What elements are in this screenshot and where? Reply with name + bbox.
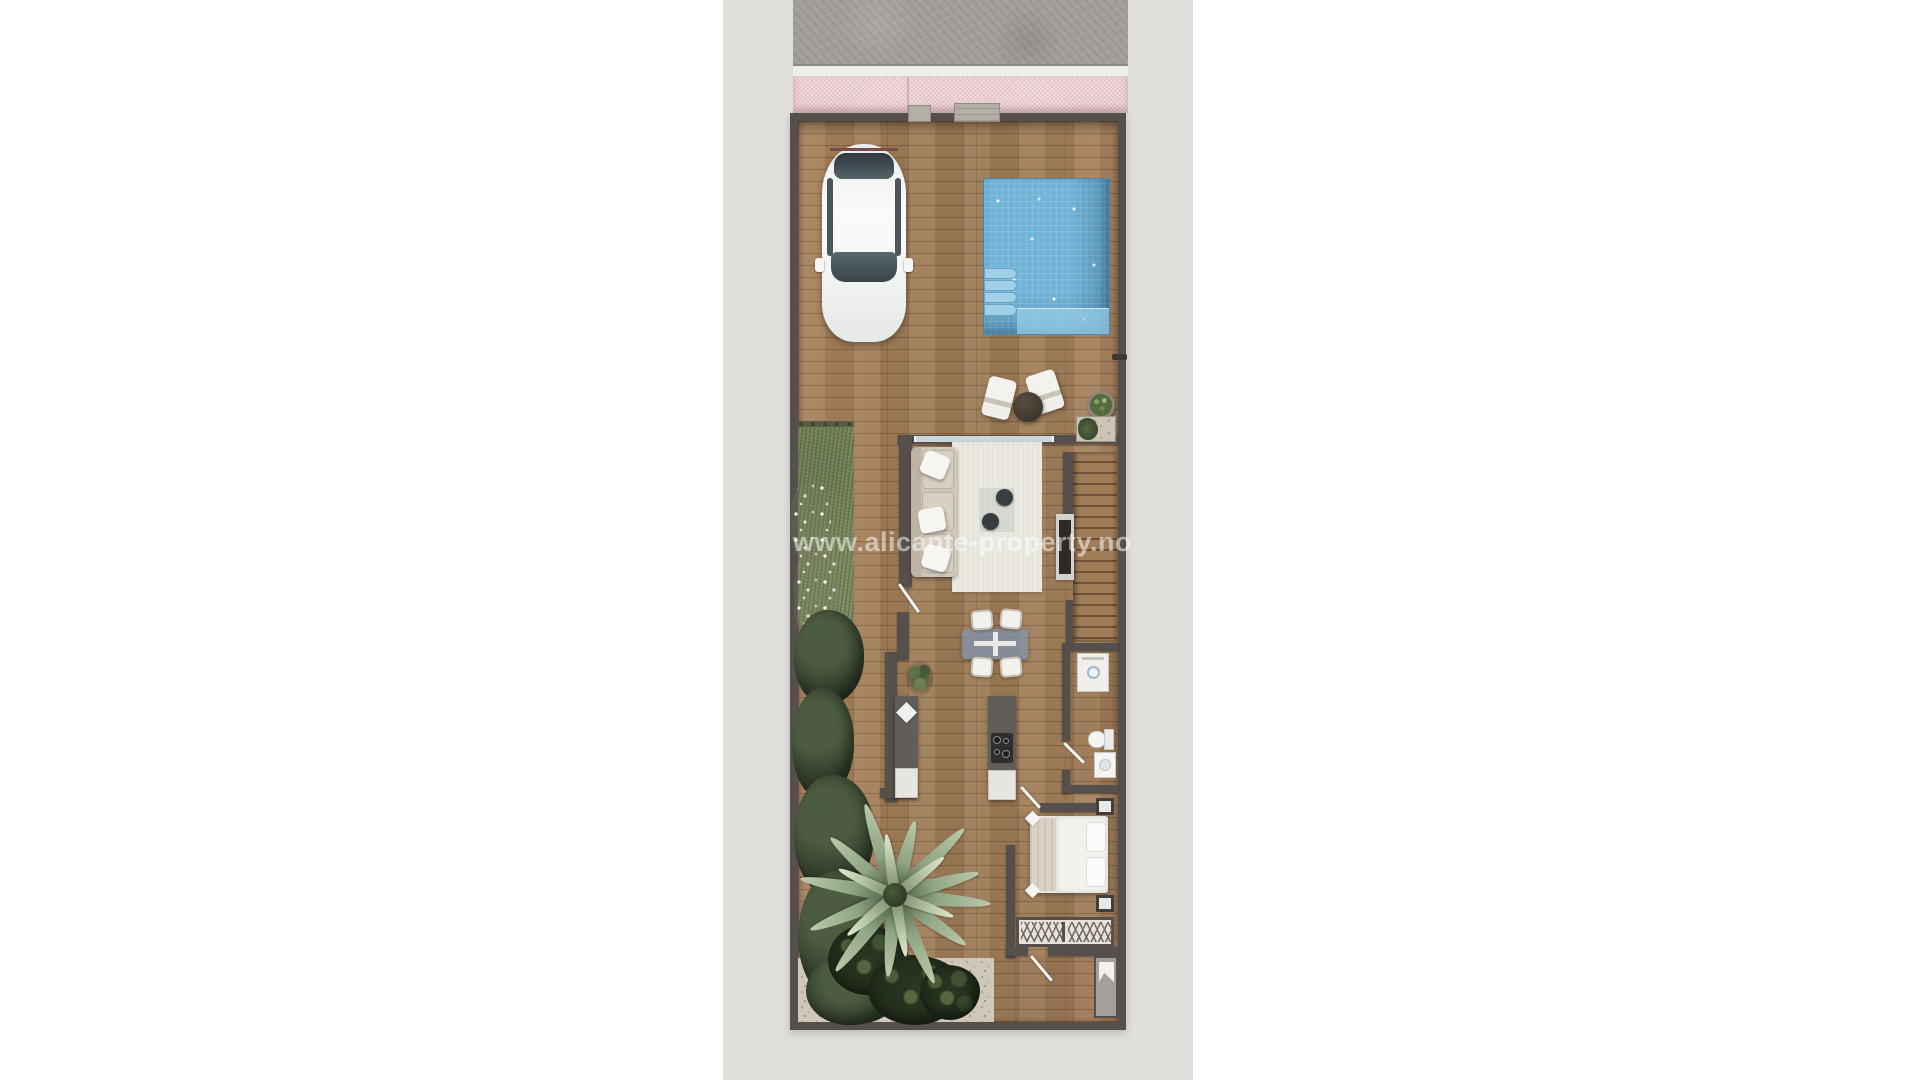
washer-drum [1087, 666, 1100, 679]
dining-chair [970, 656, 993, 677]
car [822, 144, 906, 342]
bed-blanket [1030, 818, 1059, 891]
pool-step-4 [984, 304, 1017, 316]
nightstand [1096, 895, 1114, 912]
terrace-door-stub-wall [897, 612, 909, 660]
car-mirror [904, 258, 913, 272]
indoor-plant [906, 660, 934, 696]
dining-chair [999, 656, 1023, 678]
bed-pillow [1086, 822, 1106, 852]
pool-step-2 [984, 280, 1017, 291]
bedroom-west-wall [1006, 845, 1015, 958]
burner [994, 749, 1000, 755]
washer-panel [1082, 657, 1104, 660]
car-taillight [830, 148, 898, 151]
entrance-block-small [908, 105, 931, 122]
stair-side-wall [1063, 452, 1073, 518]
bed-pillow [1086, 857, 1106, 887]
wall-shadow [798, 121, 1118, 137]
lounge-side-table [1013, 392, 1043, 422]
wardrobe-section [1021, 922, 1065, 942]
coffee-table-tray [996, 489, 1013, 506]
shower [1094, 956, 1118, 1018]
nightstand [1096, 798, 1114, 815]
car-side-glass [895, 178, 901, 256]
closet-top-wall [1062, 643, 1118, 651]
sidewalk [793, 0, 1128, 66]
towel [1099, 962, 1114, 982]
car-side-glass [827, 178, 833, 256]
dining-chair [970, 609, 993, 630]
bedroom-south-wall-left [1006, 947, 1028, 956]
bath-bed-divider-wall [1062, 785, 1118, 793]
burner [1003, 738, 1009, 744]
bathroom-west-wall-upper [1062, 651, 1070, 741]
wardrobe-section [1068, 922, 1112, 942]
car-windshield [831, 252, 897, 282]
washing-machine [1077, 653, 1109, 692]
entrance-block-steps [954, 103, 1000, 122]
toilet-tank [1104, 729, 1114, 750]
burner [993, 736, 1001, 744]
burner [1002, 750, 1010, 758]
pool-step-3 [984, 292, 1017, 303]
car-rear-window [834, 153, 894, 179]
floor-plan-render: www.alicante-property.no [0, 0, 1920, 1080]
car-mirror [815, 258, 824, 272]
bathroom-vanity [1094, 752, 1116, 778]
potted-plant [1087, 391, 1115, 419]
dining-table-base [993, 632, 998, 656]
dishwasher [895, 768, 918, 798]
curb-strip [793, 66, 1128, 77]
bed [1030, 816, 1108, 893]
bedroom-south-wall-right [1048, 947, 1118, 956]
vanity-bowl [1099, 759, 1111, 771]
wardrobe [1016, 917, 1114, 947]
planter-greenery [1078, 418, 1098, 440]
dining-chair [999, 608, 1023, 630]
cooktop [991, 733, 1013, 763]
palm-tree-core [883, 883, 907, 907]
bedroom-north-wall [1040, 803, 1098, 812]
watermark: www.alicante-property.no [793, 527, 1128, 558]
pool-bench [1017, 308, 1109, 334]
pool-step-1 [984, 268, 1017, 279]
pool-gate-handle [1112, 354, 1127, 360]
